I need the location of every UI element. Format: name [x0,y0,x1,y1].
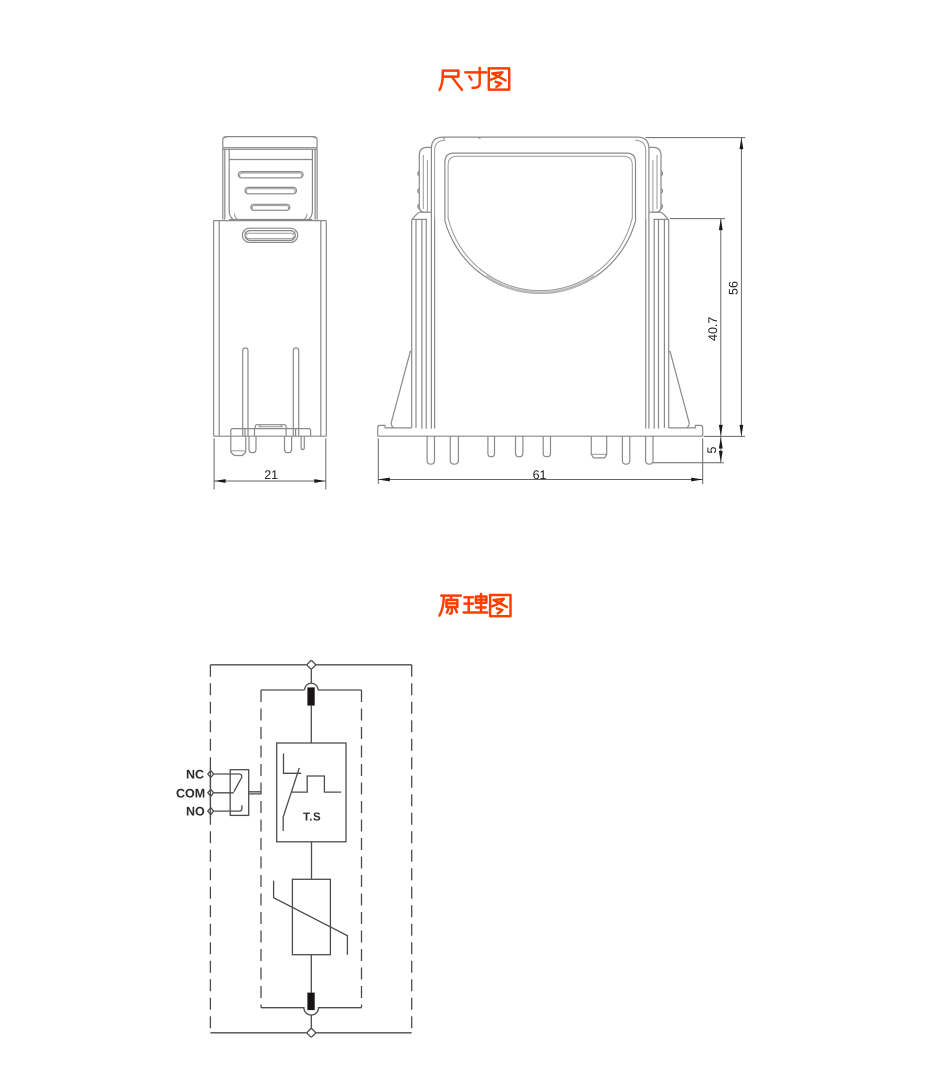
svg-text:NO: NO [186,805,205,819]
svg-text:T.S: T.S [303,812,321,824]
svg-text:40.7: 40.7 [706,317,720,341]
svg-text:61: 61 [533,468,547,482]
svg-text:5: 5 [705,447,719,454]
svg-text:NC: NC [186,768,204,782]
svg-text:56: 56 [727,281,741,295]
svg-text:COM: COM [176,786,205,800]
svg-text:21: 21 [264,468,278,482]
